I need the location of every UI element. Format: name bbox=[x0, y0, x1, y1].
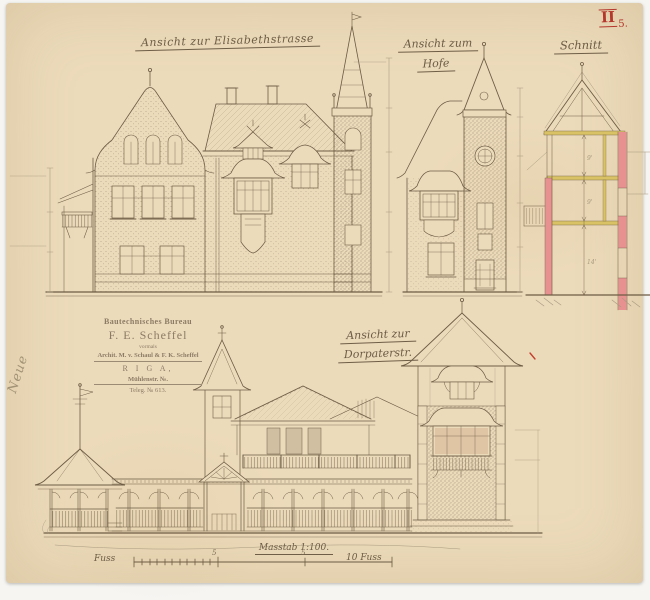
scanned-architectural-sheet: 9' 9' 14' bbox=[0, 0, 650, 600]
scale-bar-title: Masstab 1:100. bbox=[238, 543, 350, 555]
stamp-predecessors-line: Archit. M. v. Schaul & F. K. Scheffel bbox=[94, 352, 202, 362]
section-dim-label: 9' bbox=[587, 155, 593, 162]
stamp-formerly-line: vormals bbox=[94, 344, 202, 351]
title-courtyard-elevation-line1: Ansicht zum bbox=[388, 36, 488, 53]
sheet-number-sub: 5. bbox=[618, 19, 628, 30]
scale-bar-tick-label-5b: 5 bbox=[301, 549, 305, 557]
title-hof-text2: Hofe bbox=[416, 56, 455, 72]
section-dim-label: 14' bbox=[587, 259, 597, 266]
title-hof-text1: Ansicht zum bbox=[398, 36, 479, 52]
title-courtyard-elevation-line2: Hofe bbox=[406, 56, 466, 73]
stamp-telegram-line: Teleg. № 613. bbox=[94, 387, 202, 395]
street-elevation-drawing bbox=[46, 12, 382, 296]
title-section: Schnitt bbox=[543, 37, 619, 54]
section-dim-label: 9' bbox=[587, 199, 593, 206]
drawing-canvas: 9' 9' 14' bbox=[0, 0, 650, 600]
stamp-city-line: R I G A, bbox=[94, 364, 202, 374]
title-section-text: Schnitt bbox=[554, 38, 608, 55]
title-dorpater-text1: Ansicht zur bbox=[340, 327, 416, 345]
scale-bar-tick-label-5a: 5 bbox=[212, 549, 216, 557]
title-dorpater-text2: Dorpaterstr. bbox=[338, 346, 419, 364]
stamp-office-line: Bautechnisches Bureau bbox=[94, 317, 202, 327]
sheet-number-roman: II bbox=[599, 9, 618, 27]
scale-bar-left-label: Fuss bbox=[94, 554, 115, 564]
scale-bar-title-text: Masstab 1:100. bbox=[255, 543, 333, 555]
sheet-number: II5. bbox=[599, 7, 628, 31]
section-drawing: 9' 9' 14' bbox=[524, 63, 650, 311]
courtyard-elevation-dimension-line bbox=[517, 88, 523, 292]
courtyard-elevation-drawing bbox=[397, 42, 522, 296]
stamp-name-line: F. E. Scheffel bbox=[94, 328, 202, 343]
stamp-address-line: Mühlenstr. №. bbox=[94, 376, 202, 385]
architect-office-stamp: Bautechnisches Bureau F. E. Scheffel vor… bbox=[94, 317, 202, 395]
scale-bar-right-label: 10 Fuss bbox=[346, 553, 382, 563]
